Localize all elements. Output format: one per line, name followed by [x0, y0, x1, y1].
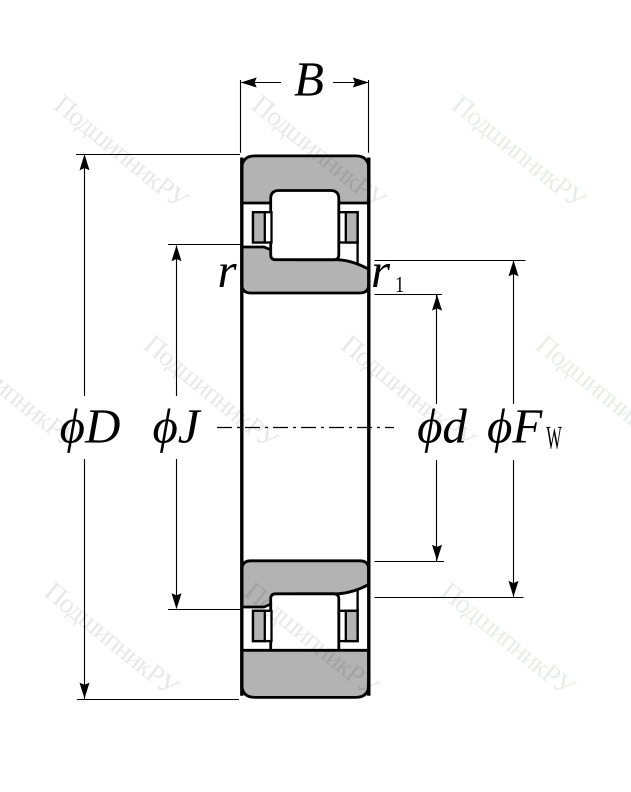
svg-text:r: r	[217, 243, 237, 298]
svg-text:ϕJ: ϕJ	[152, 399, 201, 454]
svg-text:B: B	[294, 52, 324, 107]
